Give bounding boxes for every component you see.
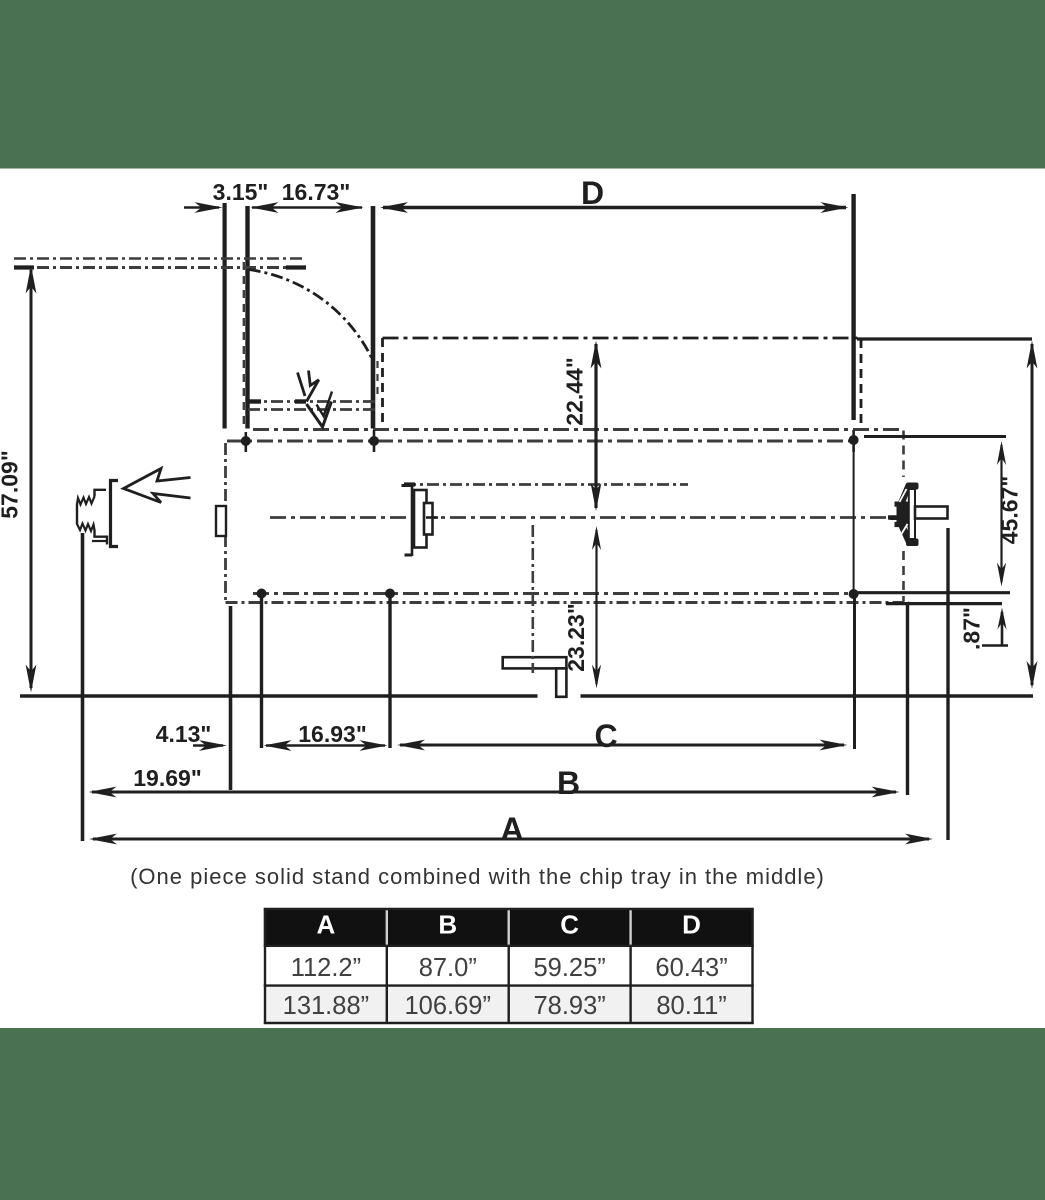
svg-text:B: B — [557, 765, 580, 801]
svg-text:3.15": 3.15" — [213, 179, 269, 205]
svg-text:60.43”: 60.43” — [655, 954, 727, 982]
svg-text:A: A — [500, 811, 523, 847]
svg-text:131.88”: 131.88” — [283, 992, 370, 1020]
svg-text:(One piece solid stand combine: (One piece solid stand combined with the… — [130, 864, 825, 889]
svg-text:D: D — [581, 175, 604, 211]
svg-text:19.69": 19.69" — [133, 765, 201, 791]
svg-text:16.93": 16.93" — [298, 721, 366, 747]
svg-text:112.2”: 112.2” — [291, 954, 361, 982]
svg-text:B: B — [438, 910, 457, 940]
svg-text:C: C — [594, 718, 617, 754]
svg-text:87.0”: 87.0” — [419, 954, 477, 982]
svg-text:106.69”: 106.69” — [405, 992, 492, 1020]
svg-text:.87": .87" — [959, 607, 985, 650]
svg-text:80.11”: 80.11” — [656, 992, 726, 1020]
svg-text:57.09": 57.09" — [0, 450, 23, 518]
svg-text:A: A — [317, 910, 336, 940]
svg-text:C: C — [560, 910, 579, 940]
svg-text:22.44": 22.44" — [562, 357, 588, 425]
svg-text:59.25”: 59.25” — [533, 954, 605, 982]
svg-text:D: D — [682, 910, 701, 940]
svg-text:16.73": 16.73" — [282, 179, 350, 205]
svg-text:78.93”: 78.93” — [533, 992, 605, 1020]
